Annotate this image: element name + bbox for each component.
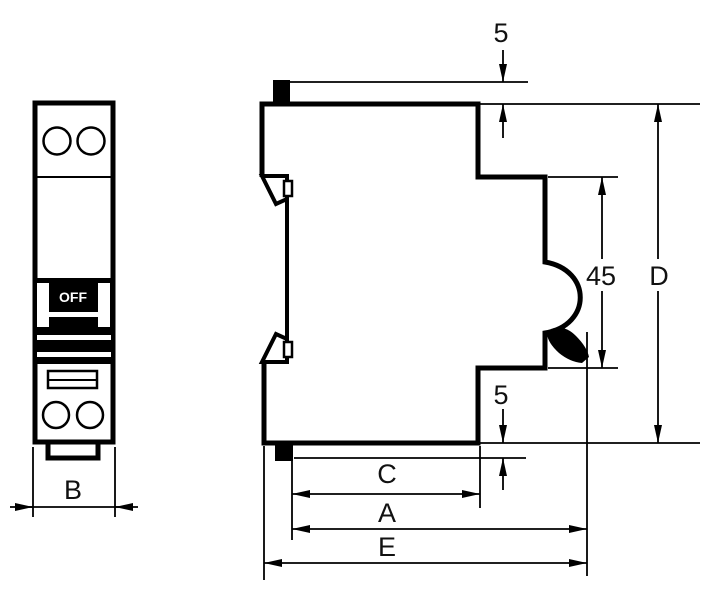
switch-slot-left [37,283,49,327]
side-body-fill [262,104,580,443]
side-rail-hook-top-notch [284,181,292,196]
switch-off-label: OFF [59,289,87,305]
dim-d-label: D [649,261,669,291]
side-release-lever [547,328,589,363]
dim-45-label: 45 [586,261,616,291]
dim-b-label: B [64,475,82,505]
dimension-d: D [649,104,669,443]
front-bottom-terminal-screw-left [43,402,69,428]
switch-toggle-groove [49,312,98,317]
drawing-canvas: OFF B [0,0,714,614]
side-rail-hook-bottom-notch [284,342,292,357]
dim-a-label: A [378,498,396,528]
dimension-a: A [292,498,587,529]
side-toggle-handle [273,80,290,104]
dimension-5-bottom: 5 [493,380,508,490]
side-view [262,80,589,461]
front-top-terminal-screw-right [78,128,105,155]
breaker-dimensional-drawing: OFF B [0,0,714,614]
switch-stripe-upper [37,335,111,340]
dimension-45: 45 [586,177,616,368]
front-bottom-terminal-screw-right [77,402,103,428]
front-switch-panel: OFF [37,278,111,364]
front-body-outline [35,103,113,442]
dimension-e: E [264,532,587,563]
front-view: OFF [35,103,113,458]
switch-stripe-lower [37,352,111,357]
dim-5top-label: 5 [493,18,508,48]
dimension-c: C [292,459,480,494]
dim-c-label: C [377,459,397,489]
switch-slot-right [98,283,110,327]
dimension-5-top: 5 [493,18,508,138]
front-top-terminal-screw-left [44,128,71,155]
dim-5bot-label: 5 [493,380,508,410]
dim-e-label: E [378,532,396,562]
